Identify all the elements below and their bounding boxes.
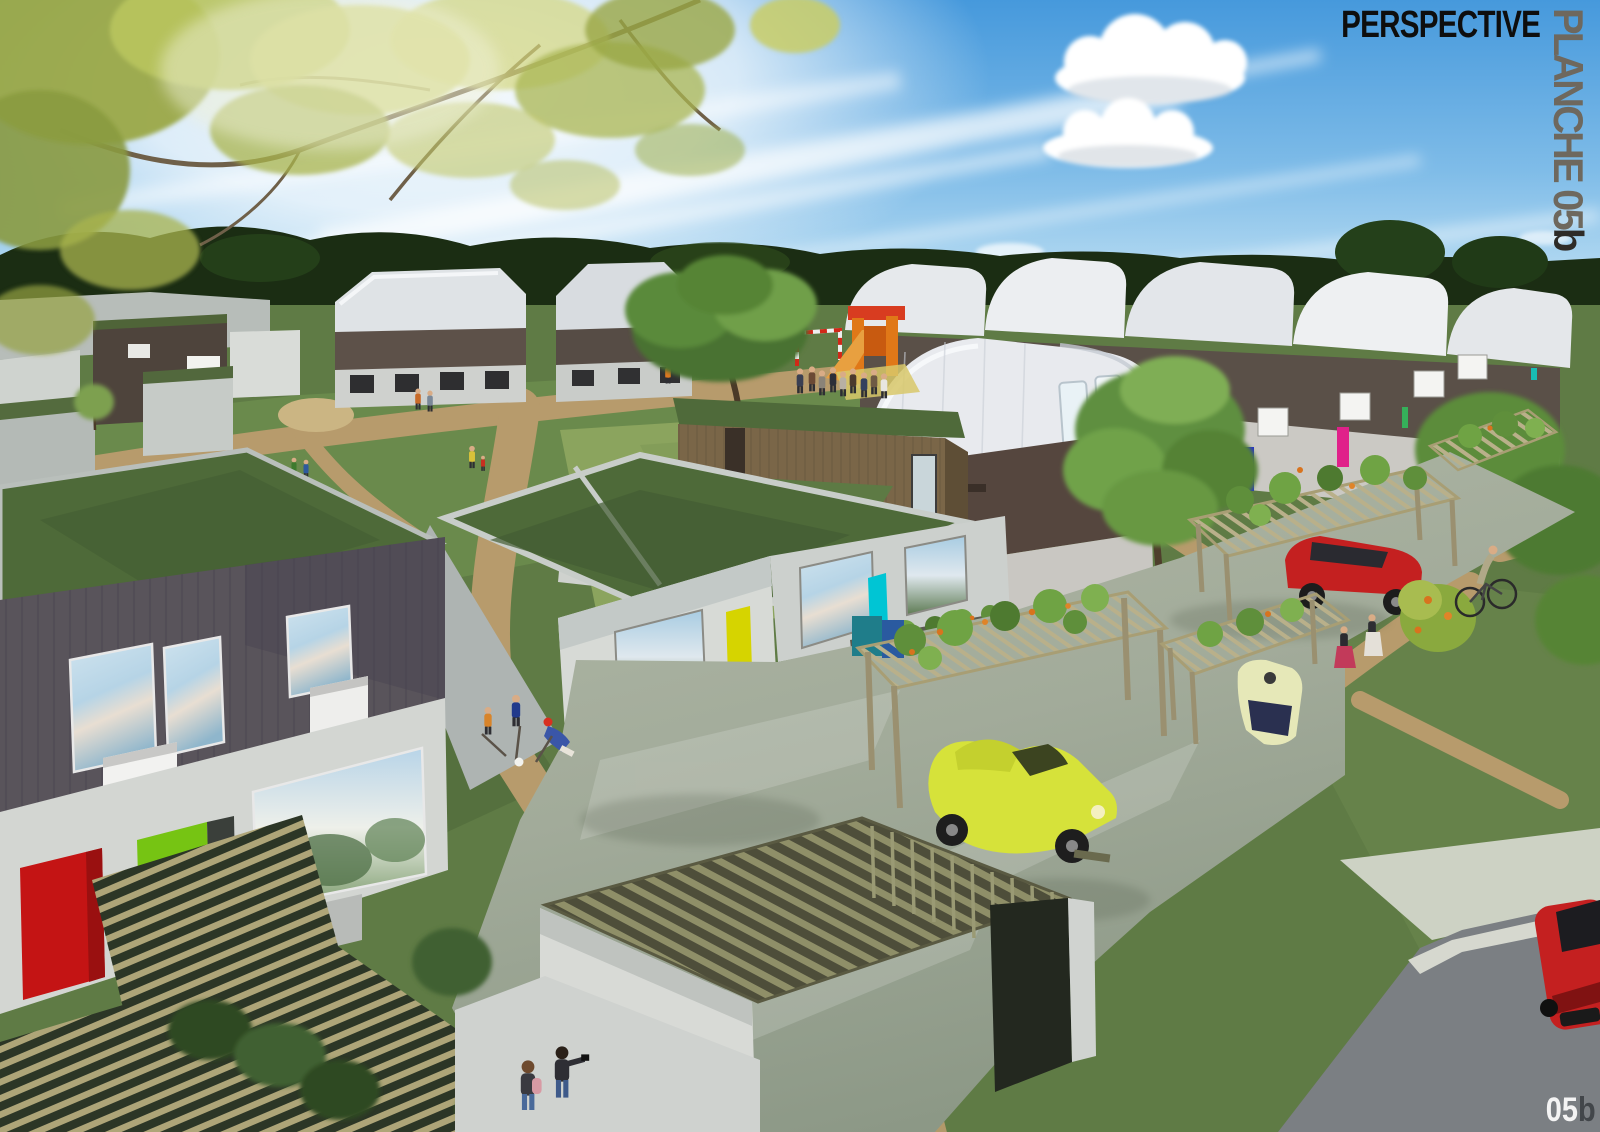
- red-car-on-road: [1533, 897, 1600, 1032]
- board-title: PERSPECTIVE: [1341, 4, 1540, 47]
- page-number: 05b: [1546, 1091, 1596, 1130]
- carport-opening: [990, 898, 1072, 1092]
- presentation-board: PERSPECTIVE PLANCHE 05b 05b: [0, 0, 1600, 1132]
- board-side-label: PLANCHE 05b: [1544, 8, 1592, 249]
- perspective-rendering: [0, 0, 1600, 1132]
- side-label-text: PLANCHE 05: [1545, 8, 1592, 228]
- side-label-suffix: b: [1545, 228, 1592, 250]
- ball: [515, 758, 524, 767]
- page-number-suffix: b: [1578, 1091, 1596, 1129]
- page-number-text: 05: [1546, 1091, 1578, 1129]
